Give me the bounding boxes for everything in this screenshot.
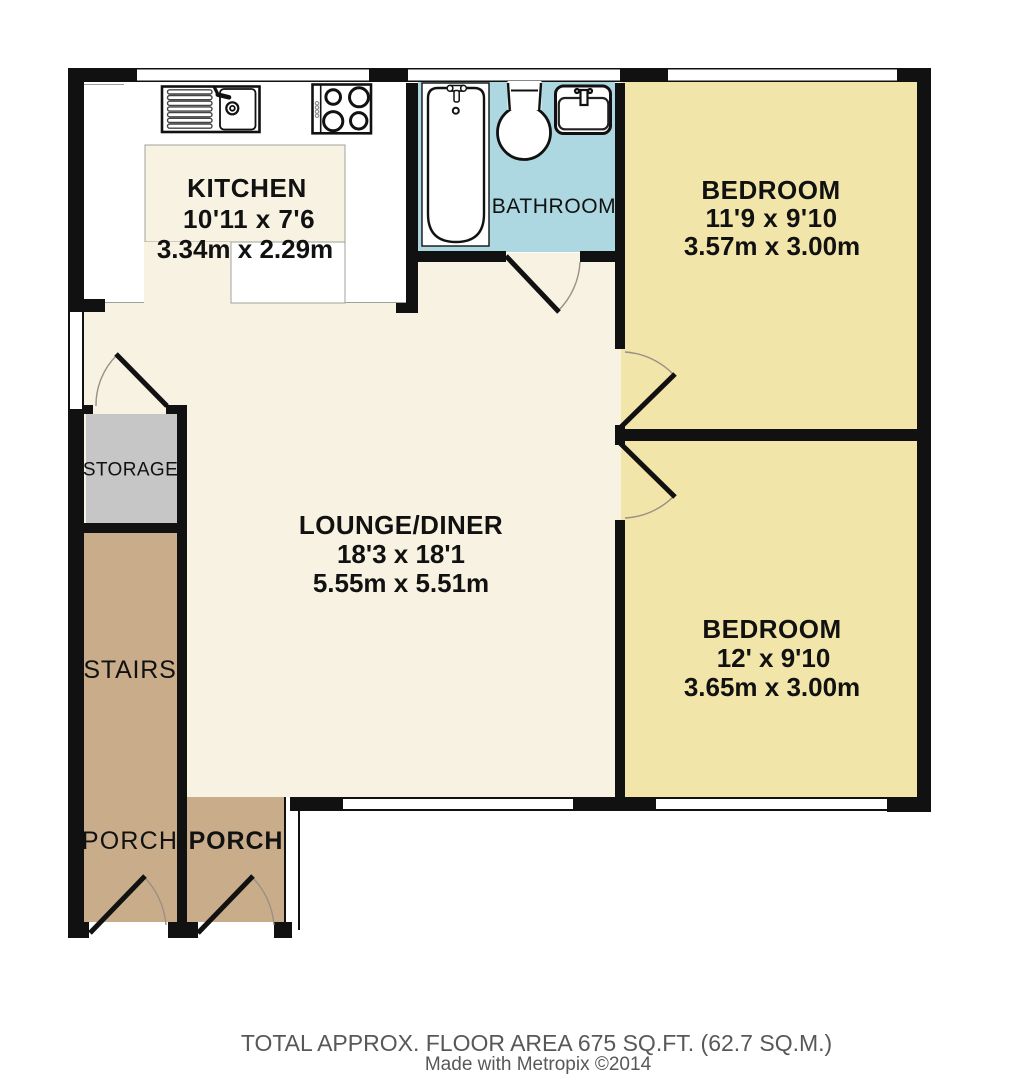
svg-text:BEDROOM: BEDROOM (702, 614, 841, 644)
svg-text:BEDROOM: BEDROOM (701, 175, 840, 205)
svg-text:3.57m x 3.00m: 3.57m x 3.00m (684, 231, 860, 261)
svg-text:5.55m x 5.51m: 5.55m x 5.51m (313, 568, 489, 598)
svg-text:STAIRS: STAIRS (83, 656, 176, 684)
svg-text:10'11 x 7'6: 10'11 x 7'6 (183, 204, 315, 234)
svg-text:KITCHEN: KITCHEN (187, 173, 307, 203)
svg-text:3.65m x 3.00m: 3.65m x 3.00m (684, 672, 860, 702)
svg-text:BATHROOM: BATHROOM (492, 195, 617, 218)
svg-text:12' x 9'10: 12' x 9'10 (717, 643, 831, 673)
svg-text:Made with Metropix ©2014: Made with Metropix ©2014 (425, 1054, 652, 1075)
svg-text:TOTAL APPROX. FLOOR AREA 675 S: TOTAL APPROX. FLOOR AREA 675 SQ.FT. (62.… (241, 1030, 832, 1056)
svg-text:LOUNGE/DINER: LOUNGE/DINER (299, 510, 503, 540)
svg-text:3.34m x 2.29m: 3.34m x 2.29m (157, 234, 333, 264)
svg-text:PORCH: PORCH (82, 827, 178, 855)
svg-text:PORCH: PORCH (189, 827, 284, 855)
svg-text:STORAGE: STORAGE (83, 460, 178, 481)
svg-text:11'9 x 9'10: 11'9 x 9'10 (705, 203, 837, 233)
svg-text:18'3 x 18'1: 18'3 x 18'1 (337, 539, 465, 569)
